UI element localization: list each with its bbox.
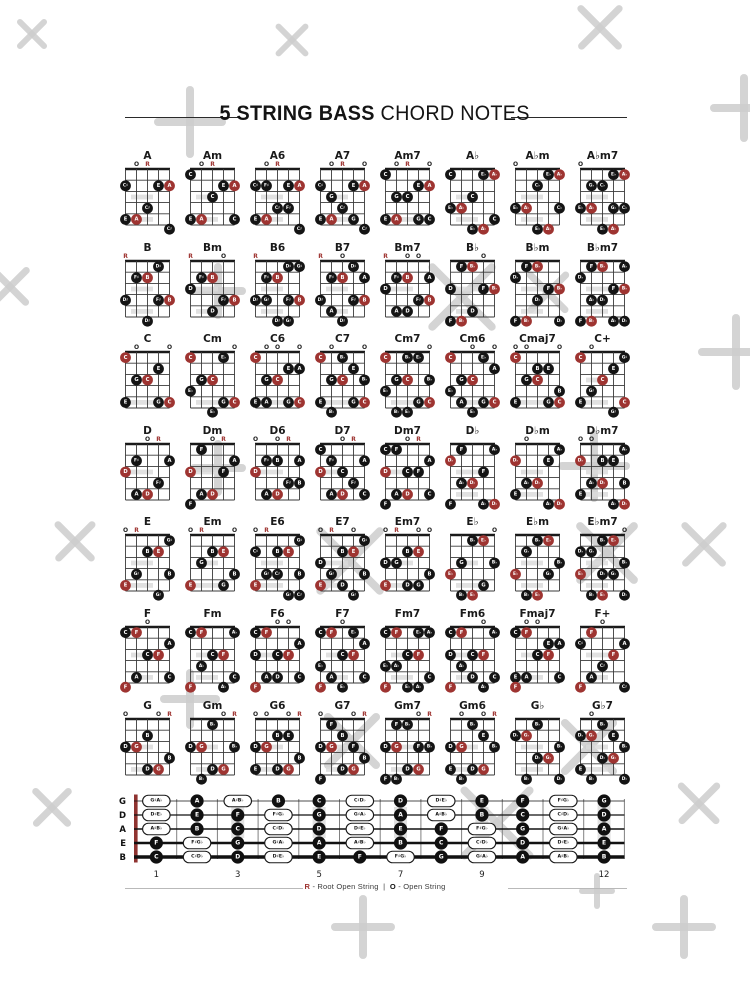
svg-text:E♭: E♭ (221, 354, 226, 360)
svg-text:A: A (264, 491, 268, 497)
svg-text:D: D (235, 854, 240, 861)
open-string-marker: O (589, 344, 594, 351)
svg-text:D♭: D♭ (622, 775, 628, 781)
svg-text:E♭: E♭ (383, 663, 388, 669)
svg-text:G♯: G♯ (286, 317, 292, 323)
svg-text:F: F (189, 684, 193, 690)
svg-text:F: F (330, 630, 334, 636)
chord-diagram-dbm7: D♭m7OOA♭D♭BEA♭D♭BEA♭D♭ (570, 420, 635, 512)
chord-diagram-cm: CmOCE♭GCE♭GCE♭ (180, 328, 245, 420)
svg-text:F: F (319, 776, 323, 782)
svg-text:C: C (168, 675, 172, 681)
svg-text:D♭: D♭ (622, 317, 628, 323)
svg-text:F: F (579, 684, 583, 690)
svg-text:D♯: D♯ (340, 317, 346, 323)
svg-text:A♯B♭: A♯B♭ (435, 812, 447, 818)
chord-diagram-am: AmORCEACEAC (180, 145, 245, 237)
svg-text:C: C (189, 172, 193, 178)
svg-text:F♯: F♯ (394, 274, 399, 280)
svg-text:E: E (384, 217, 388, 223)
svg-text:F: F (521, 798, 525, 805)
chord-diagram-gm6: Gm6OORB♭EDGB♭EDGB♭ (440, 695, 505, 787)
chord-name: A♭m (525, 150, 549, 162)
svg-text:C: C (363, 491, 367, 497)
svg-text:C: C (168, 400, 172, 406)
svg-text:G♯: G♯ (264, 571, 270, 577)
svg-text:C: C (211, 377, 215, 383)
svg-text:A: A (329, 217, 333, 223)
svg-text:B♭: B♭ (199, 775, 204, 781)
svg-text:D♯: D♯ (123, 296, 129, 302)
chord-diagram-fm: FmCFA♭CFA♭CFA♭ (180, 603, 245, 695)
svg-text:C♯: C♯ (123, 183, 128, 189)
svg-text:C: C (319, 630, 323, 636)
fret-number: 12 (599, 870, 610, 880)
svg-text:A♭: A♭ (589, 205, 594, 211)
svg-text:E: E (254, 217, 258, 223)
chord-name: Bm (203, 242, 222, 254)
chord-diagram-e7: E7OROG♯BEDG♯BEDG♯ (310, 511, 375, 603)
svg-text:C♯D♭: C♯D♭ (191, 854, 203, 860)
svg-text:G: G (329, 194, 333, 200)
svg-text:E♭: E♭ (535, 592, 540, 598)
chord-diagram-ebm7: E♭m7OB♭E♭D♭G♭B♭E♭D♭G♭B♭E♭D♭ (570, 511, 635, 603)
chord-diagram-cmaj7: Cmaj7OOOCBEGCBEGC (505, 328, 570, 420)
svg-text:F♯: F♯ (199, 274, 204, 280)
open-string-marker: O (351, 711, 356, 718)
chord-diagram-am7: Am7OROCEAGCEAGC (375, 145, 440, 237)
svg-text:G: G (221, 766, 225, 772)
svg-text:G♭: G♭ (589, 732, 595, 738)
svg-text:G: G (156, 400, 160, 406)
svg-text:E: E (287, 183, 291, 189)
svg-text:G♯: G♯ (167, 538, 173, 544)
svg-text:C: C (428, 400, 432, 406)
open-string-marker: O (405, 253, 410, 260)
svg-text:B: B (276, 733, 280, 739)
chord-diagram-ab: A♭CE♭A♭CE♭A♭CE♭A♭ (440, 145, 505, 237)
svg-text:A♭: A♭ (199, 663, 204, 669)
svg-text:D: D (470, 308, 475, 314)
svg-text:B♭: B♭ (459, 317, 464, 323)
svg-text:E: E (157, 183, 161, 189)
svg-text:C: C (471, 194, 475, 200)
svg-text:G: G (439, 854, 444, 861)
open-string-marker: O (264, 344, 269, 351)
svg-text:A: A (524, 675, 528, 681)
svg-text:A♭: A♭ (611, 317, 616, 323)
svg-text:A: A (589, 675, 593, 681)
svg-text:D♭: D♭ (470, 480, 476, 486)
svg-text:D: D (253, 469, 258, 475)
open-string-marker: R (416, 436, 421, 443)
svg-text:E: E (579, 491, 583, 497)
open-string-marker: R (362, 711, 367, 718)
svg-text:C: C (317, 798, 322, 805)
svg-text:A: A (520, 854, 525, 861)
svg-text:C: C (493, 675, 497, 681)
svg-text:A♭: A♭ (481, 501, 486, 507)
svg-text:G: G (317, 812, 322, 819)
svg-text:G: G (199, 561, 203, 567)
svg-text:B: B (146, 549, 150, 555)
open-string-marker: R (210, 161, 215, 168)
svg-text:D: D (123, 469, 128, 475)
svg-text:G: G (481, 400, 485, 406)
svg-text:G: G (459, 377, 463, 383)
fret-number: 9 (479, 870, 484, 880)
svg-text:A: A (398, 812, 403, 819)
svg-text:G: G (286, 766, 290, 772)
open-string-marker: R (394, 527, 399, 534)
svg-text:F♯G♭: F♯G♭ (191, 840, 203, 846)
chord-diagram-a: AORC♯EAC♯EAC♯ (115, 145, 180, 237)
svg-text:C: C (341, 652, 345, 658)
svg-text:B♭: B♭ (600, 538, 605, 544)
svg-text:F♯G♭: F♯G♭ (273, 812, 285, 818)
svg-text:A♭: A♭ (481, 684, 486, 690)
svg-text:G♭: G♭ (589, 549, 595, 555)
svg-text:E♭: E♭ (470, 226, 475, 232)
svg-text:F: F (547, 286, 551, 292)
poster-canvas: 5 STRING BASS CHORD NOTES AORC♯EAC♯EAC♯A… (0, 0, 750, 1000)
svg-text:E♭: E♭ (383, 388, 388, 394)
chord-diagram-a6: A6ORC♯F♯EAC♯F♯EAC♯ (245, 145, 310, 237)
svg-text:F: F (525, 630, 529, 636)
svg-text:A♭: A♭ (611, 501, 616, 507)
svg-text:D♯: D♯ (275, 317, 281, 323)
svg-text:A: A (557, 641, 561, 647)
svg-text:E: E (482, 733, 486, 739)
chord-diagram-db: D♭FA♭D♭FA♭D♭FA♭D♭ (440, 420, 505, 512)
svg-text:E: E (124, 583, 128, 589)
svg-text:G♯: G♯ (622, 354, 628, 360)
svg-text:C♯: C♯ (275, 571, 280, 577)
svg-text:A: A (362, 458, 366, 464)
svg-text:C: C (601, 377, 605, 383)
open-string-marker: O (253, 711, 258, 718)
svg-text:B♭: B♭ (524, 317, 529, 323)
open-string-marker: O (318, 527, 323, 534)
chord-diagram-c: COOCEGCEGC (115, 328, 180, 420)
open-string-marker: O (383, 527, 388, 534)
svg-text:B♭: B♭ (459, 775, 464, 781)
svg-text:G: G (156, 766, 160, 772)
svg-text:E: E (317, 854, 321, 861)
svg-text:F♯: F♯ (156, 480, 161, 486)
svg-text:C♭: C♭ (600, 183, 605, 189)
svg-text:C♯: C♯ (297, 226, 302, 232)
svg-text:E♭: E♭ (481, 354, 486, 360)
chord-name: C (144, 333, 152, 345)
svg-text:F: F (417, 744, 421, 750)
svg-text:G♯: G♯ (329, 571, 335, 577)
svg-text:C: C (514, 355, 518, 361)
svg-text:D♯: D♯ (156, 263, 162, 269)
svg-text:C: C (276, 652, 280, 658)
svg-text:E: E (319, 583, 323, 589)
svg-text:D♭: D♭ (557, 501, 563, 507)
svg-text:E: E (287, 733, 291, 739)
svg-text:G♭: G♭ (546, 571, 552, 577)
svg-text:B♭: B♭ (459, 592, 464, 598)
open-string-marker: O (340, 253, 345, 260)
svg-text:C: C (558, 400, 562, 406)
svg-text:B: B (406, 549, 410, 555)
open-string-marker: O (362, 344, 367, 351)
open-string-marker: R (167, 711, 172, 718)
svg-text:F: F (417, 652, 421, 658)
svg-text:A♯B♭: A♯B♭ (558, 854, 570, 860)
svg-text:A♭: A♭ (611, 226, 616, 232)
svg-text:F♯: F♯ (264, 457, 269, 463)
svg-text:A♭: A♭ (481, 226, 486, 232)
svg-text:E♭: E♭ (448, 571, 453, 577)
svg-text:B: B (168, 572, 172, 578)
chord-name: B♭m (526, 242, 550, 254)
svg-text:C: C (236, 826, 241, 833)
svg-text:D: D (275, 766, 280, 772)
svg-text:G♯: G♯ (297, 263, 303, 269)
svg-text:G: G (459, 561, 463, 567)
svg-text:B: B (276, 275, 280, 281)
svg-text:B♭: B♭ (535, 721, 540, 727)
open-string-marker: R (405, 161, 410, 168)
svg-text:D: D (275, 675, 280, 681)
svg-text:G: G (394, 561, 398, 567)
svg-text:D♯E♭: D♯E♭ (354, 826, 366, 832)
svg-text:G♯A♭: G♯A♭ (354, 812, 366, 818)
svg-text:C: C (449, 355, 453, 361)
svg-text:D♭: D♭ (513, 732, 519, 738)
open-string-marker: O (297, 344, 302, 351)
svg-text:D: D (448, 652, 453, 658)
svg-text:B: B (341, 275, 345, 281)
svg-text:E♭: E♭ (611, 171, 616, 177)
svg-text:G: G (602, 798, 607, 805)
svg-text:F: F (200, 447, 204, 453)
chord-diagram-c6: C6OOOCEAGCEAGC (245, 328, 310, 420)
svg-text:D: D (318, 744, 323, 750)
svg-text:C♯: C♯ (362, 226, 367, 232)
svg-text:F♯: F♯ (351, 480, 356, 486)
svg-text:F♯G♭: F♯G♭ (558, 798, 570, 804)
open-string-marker: O (427, 344, 432, 351)
svg-text:B: B (363, 572, 367, 578)
svg-text:E: E (417, 549, 421, 555)
svg-text:D: D (602, 812, 607, 819)
chord-name: A♭m7 (587, 150, 618, 162)
svg-text:F: F (124, 684, 128, 690)
svg-text:D♭: D♭ (600, 480, 606, 486)
svg-text:D: D (405, 491, 410, 497)
svg-text:E♭: E♭ (535, 226, 540, 232)
svg-text:G♯A♭: G♯A♭ (272, 840, 284, 846)
svg-text:D: D (210, 491, 215, 497)
open-string-marker: R (253, 253, 258, 260)
svg-text:C♯D♭: C♯D♭ (273, 826, 285, 832)
chord-name: B♭m7 (587, 242, 618, 254)
svg-text:G: G (481, 766, 485, 772)
svg-text:E: E (254, 583, 258, 589)
svg-text:G♯: G♯ (297, 538, 303, 544)
svg-text:C: C (384, 630, 388, 636)
svg-text:C: C (471, 652, 475, 658)
fret-number: 1 (154, 870, 159, 880)
svg-text:F♯G♭: F♯G♭ (395, 854, 407, 860)
svg-text:C: C (233, 400, 237, 406)
svg-text:A: A (427, 275, 431, 281)
svg-text:B♭: B♭ (600, 721, 605, 727)
svg-text:E: E (157, 366, 161, 372)
svg-text:G: G (520, 826, 525, 833)
svg-text:D: D (405, 308, 410, 314)
svg-text:D: D (383, 286, 388, 292)
chord-diagram-bbm7: B♭m7FB♭A♭D♭FB♭A♭D♭FB♭A♭D♭ (570, 237, 635, 329)
svg-text:B: B (298, 480, 302, 486)
svg-text:F: F (200, 630, 204, 636)
open-string-marker: O (253, 436, 258, 443)
chord-name: Cm (203, 333, 222, 345)
svg-text:B♭: B♭ (622, 743, 627, 749)
svg-text:C: C (154, 854, 159, 861)
svg-text:C: C (319, 447, 323, 453)
chord-diagram-abm: A♭mOE♭A♭C♭E♭A♭C♭E♭A♭ (505, 145, 570, 237)
svg-text:F: F (590, 263, 594, 269)
svg-text:D: D (340, 583, 345, 589)
string-label: D (119, 811, 126, 821)
svg-text:F: F (439, 826, 443, 833)
chord-name: Cm7 (395, 333, 421, 345)
svg-text:E: E (384, 583, 388, 589)
svg-text:G: G (416, 400, 420, 406)
svg-text:G: G (329, 744, 333, 750)
svg-text:D: D (145, 491, 150, 497)
chord-name: G6 (270, 700, 286, 712)
svg-text:E♭: E♭ (546, 171, 551, 177)
svg-text:D♯E♭: D♯E♭ (151, 812, 163, 818)
svg-text:E: E (254, 400, 258, 406)
svg-text:G: G (546, 400, 550, 406)
svg-text:B♭: B♭ (535, 263, 540, 269)
svg-text:D: D (405, 583, 410, 589)
svg-text:B♭: B♭ (600, 263, 605, 269)
fret-number: 3 (235, 870, 240, 880)
open-string-marker: O (199, 161, 204, 168)
svg-text:G: G (199, 377, 203, 383)
open-string-marker: R (329, 527, 334, 534)
svg-text:E: E (547, 458, 551, 464)
svg-text:A: A (427, 183, 431, 189)
svg-text:D: D (340, 491, 345, 497)
svg-text:B: B (146, 275, 150, 281)
chord-diagram-gb7: G♭7OB♭D♭G♭EB♭D♭G♭EB♭D♭ (570, 695, 635, 787)
svg-text:C: C (254, 630, 258, 636)
svg-text:G: G (416, 766, 420, 772)
svg-text:F: F (352, 744, 356, 750)
svg-text:E: E (352, 366, 356, 372)
svg-text:C: C (514, 630, 518, 636)
svg-text:E: E (189, 217, 193, 223)
open-string-marker: R (340, 161, 345, 168)
svg-text:D♭: D♭ (578, 549, 584, 555)
svg-text:E♭: E♭ (481, 538, 486, 544)
svg-text:E♭: E♭ (513, 205, 518, 211)
svg-text:G♯: G♯ (589, 388, 595, 394)
svg-text:B♭: B♭ (589, 317, 594, 323)
svg-text:E♭: E♭ (188, 388, 193, 394)
svg-text:B♭: B♭ (622, 285, 627, 291)
svg-text:E♭: E♭ (405, 409, 410, 415)
chord-name: E6 (270, 516, 284, 528)
svg-text:B: B (276, 458, 280, 464)
open-string-marker: O (362, 161, 367, 168)
svg-text:A: A (329, 675, 333, 681)
svg-text:E♭: E♭ (513, 571, 518, 577)
string-label: B (120, 853, 126, 863)
chord-diagram-dm7: Dm7ORCFADCFADCF (375, 420, 440, 512)
svg-text:A♭: A♭ (427, 629, 432, 635)
svg-text:D♭: D♭ (557, 775, 563, 781)
svg-text:A: A (297, 183, 301, 189)
open-string-marker: O (318, 711, 323, 718)
string-label: A (119, 825, 126, 835)
open-string-marker: R (264, 527, 269, 534)
svg-text:B: B (233, 297, 237, 303)
svg-text:E: E (514, 491, 518, 497)
svg-text:A♯B♭: A♯B♭ (232, 798, 244, 804)
svg-text:B: B (536, 366, 540, 372)
chord-diagram-em7: Em7OROOBEDGBEDG (375, 511, 440, 603)
svg-text:C: C (439, 840, 444, 847)
svg-text:C: C (384, 355, 388, 361)
svg-text:B♭: B♭ (340, 354, 345, 360)
svg-text:G: G (134, 377, 138, 383)
svg-text:F: F (352, 652, 356, 658)
svg-text:B♭: B♭ (470, 263, 475, 269)
svg-text:E: E (480, 798, 484, 805)
svg-text:C: C (341, 377, 345, 383)
svg-text:G: G (264, 744, 268, 750)
svg-text:A: A (167, 458, 171, 464)
chord-name: B♭ (466, 242, 479, 254)
svg-text:C♯D♭: C♯D♭ (476, 840, 488, 846)
svg-text:A: A (394, 491, 398, 497)
svg-text:D♭: D♭ (448, 457, 454, 463)
chord-diagram-gb: G♭B♭D♭G♭B♭D♭G♭B♭D♭ (505, 695, 570, 787)
open-string-marker: O (329, 161, 334, 168)
svg-text:A: A (492, 366, 496, 372)
svg-text:A: A (622, 641, 626, 647)
svg-text:G: G (199, 744, 203, 750)
svg-text:A: A (394, 217, 398, 223)
open-string-marker: O (286, 619, 291, 626)
svg-text:B: B (406, 275, 410, 281)
open-string-marker: O (275, 436, 280, 443)
svg-text:D♭: D♭ (600, 754, 606, 760)
svg-text:C: C (428, 675, 432, 681)
svg-text:B♭: B♭ (557, 743, 562, 749)
svg-text:B: B (480, 812, 485, 819)
svg-text:D♭: D♭ (535, 754, 541, 760)
svg-text:B: B (211, 549, 215, 555)
svg-text:D: D (520, 840, 525, 847)
open-string-marker: O (351, 527, 356, 534)
svg-text:C: C (449, 630, 453, 636)
title-light: CHORD NOTES (381, 101, 530, 125)
svg-text:A: A (167, 183, 171, 189)
svg-text:G: G (481, 583, 485, 589)
